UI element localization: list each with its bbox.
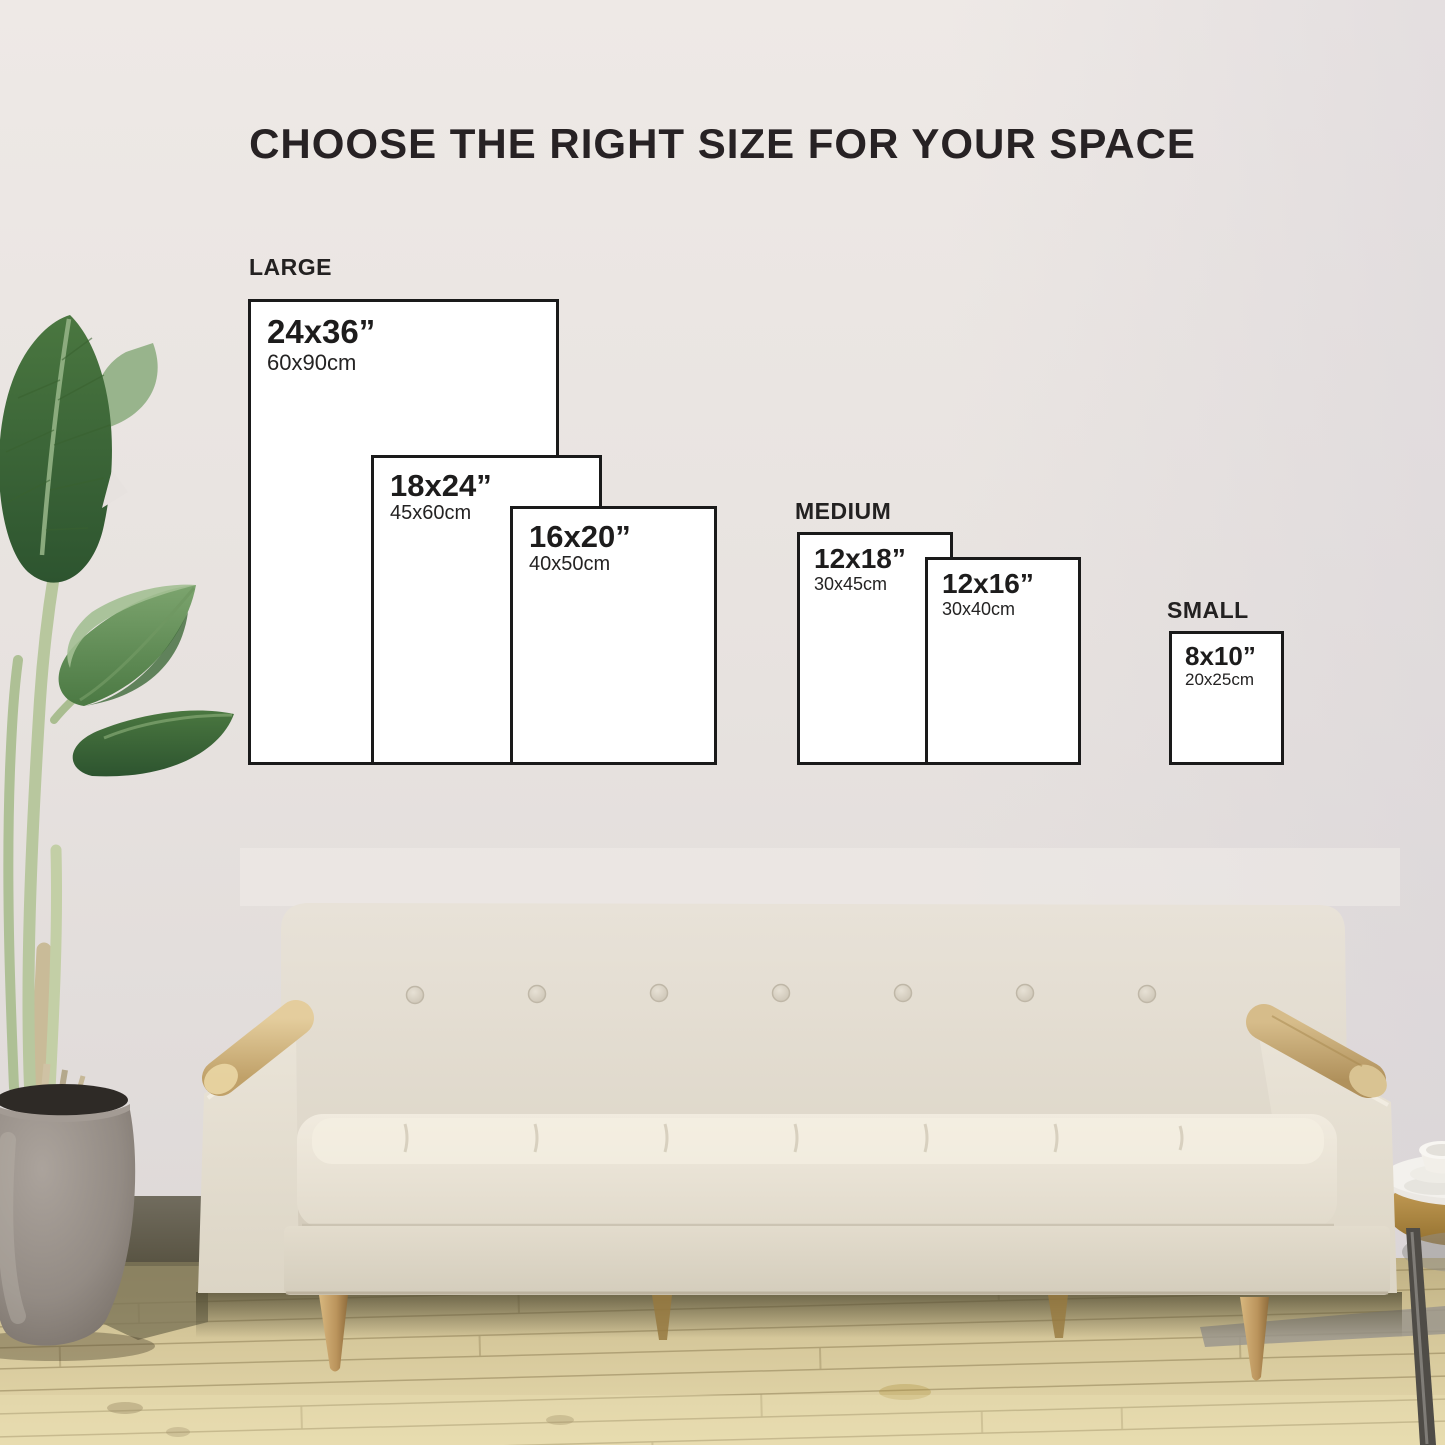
size-inches: 18x24” [390, 469, 599, 502]
wall-glow-behind-sofa [240, 848, 1400, 906]
size-cm: 30x40cm [942, 599, 1078, 620]
size-box-16x20: 16x20” 40x50cm [510, 506, 717, 765]
size-cm: 60x90cm [267, 350, 556, 375]
size-inches: 24x36” [267, 314, 556, 350]
size-cm: 20x25cm [1185, 670, 1281, 690]
size-box-12x16: 12x16” 30x40cm [925, 557, 1081, 765]
page-title: CHOOSE THE RIGHT SIZE FOR YOUR SPACE [0, 120, 1445, 168]
size-inches: 16x20” [529, 520, 714, 553]
group-label-medium: MEDIUM [795, 498, 891, 525]
under-sofa-shadow [196, 1292, 1402, 1338]
sofa-base [284, 1226, 1390, 1295]
size-cm: 40x50cm [529, 553, 714, 576]
size-guide-image: CHOOSE THE RIGHT SIZE FOR YOUR SPACE LAR… [0, 0, 1445, 1445]
size-box-8x10: 8x10” 20x25cm [1169, 631, 1284, 765]
size-inches: 12x16” [942, 569, 1078, 599]
group-label-small: SMALL [1167, 597, 1249, 624]
size-inches: 8x10” [1185, 642, 1281, 670]
group-label-large: LARGE [249, 254, 332, 281]
